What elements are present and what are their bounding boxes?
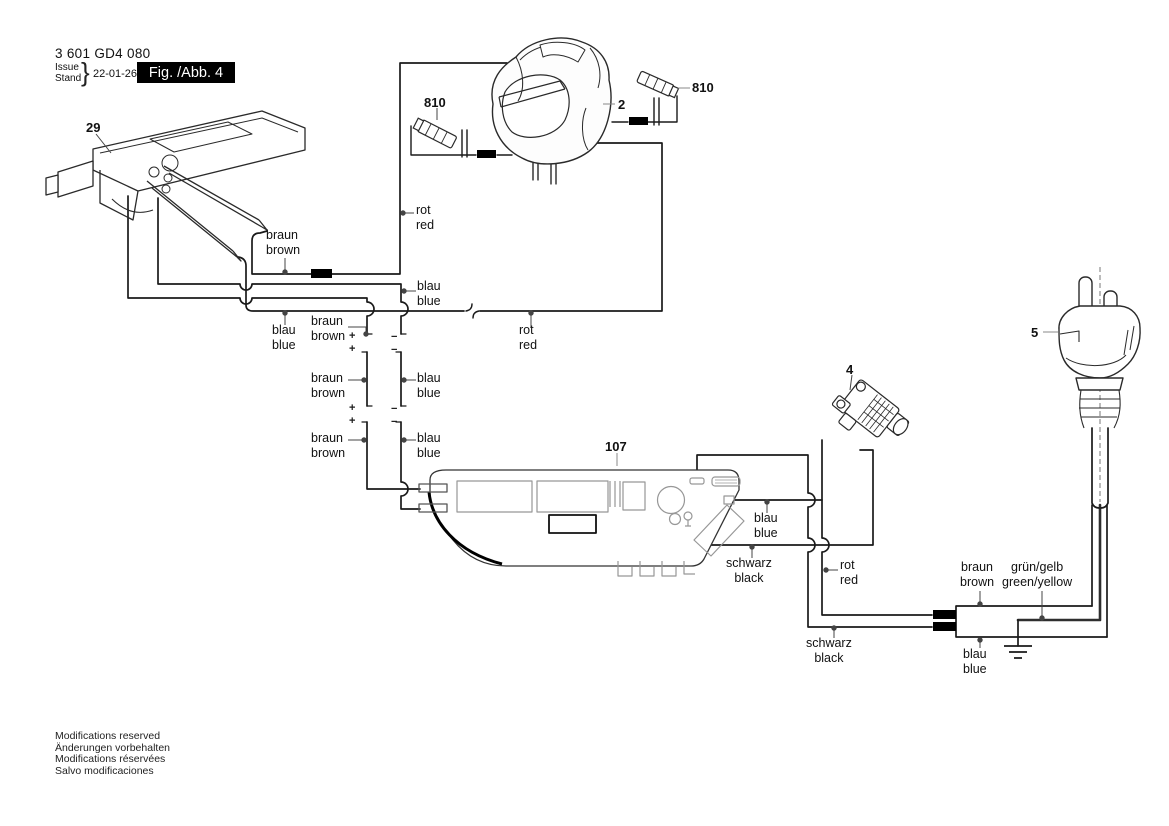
part-label-2: 2 <box>618 97 625 112</box>
polarity-mark: + <box>349 415 355 427</box>
wire-label-blau: blau blue <box>417 431 441 461</box>
wire-label-blau: blau blue <box>963 647 987 677</box>
wiring-diagram-page: 3 601 GD4 080 Issue Stand } 22-01-26 Fig… <box>0 0 1169 826</box>
wire-label-braun: braun brown <box>960 560 994 590</box>
polarity-mark: + <box>349 343 355 355</box>
wire-label-gr-n-gelb: grün/gelb green/yellow <box>1002 560 1072 590</box>
ground-symbol-icon <box>1004 646 1032 658</box>
issue-stand-label: Issue Stand <box>55 62 81 84</box>
modifications-notice: Modifications reservedÄnderungen vorbeha… <box>55 731 170 777</box>
part-label-4: 4 <box>846 362 853 377</box>
cord-jacket <box>956 606 1107 637</box>
wire-rot-conn4-crimp <box>822 440 932 615</box>
part-label-5: 5 <box>1031 325 1038 340</box>
wire-label-rot: rot red <box>840 558 858 588</box>
wire-label-braun: braun brown <box>266 228 300 258</box>
wire-label-blau: blau blue <box>272 323 296 353</box>
polarity-mark: + <box>349 402 355 414</box>
wire-label-blau: blau blue <box>417 279 441 309</box>
wire-label-schwarz: schwarz black <box>726 556 772 586</box>
control-board-107-drawing <box>419 470 744 576</box>
wire-label-blau: blau blue <box>754 511 778 541</box>
part-number: 3 601 GD4 080 <box>55 46 150 61</box>
part-label-810: 810 <box>692 80 714 95</box>
wire-label-braun: braun brown <box>311 314 345 344</box>
wire-label-schwarz: schwarz black <box>806 636 852 666</box>
terminal-810-right-drawing <box>637 71 679 99</box>
figure-label-badge: Fig. /Abb. 4 <box>137 62 235 83</box>
polarity-mark: − <box>391 403 397 415</box>
wire-label-rot: rot red <box>519 323 537 353</box>
wire-label-braun: braun brown <box>311 431 345 461</box>
terminal-810-left-drawing <box>413 117 457 148</box>
polarity-mark: − <box>391 344 397 356</box>
wire-label-blau: blau blue <box>417 371 441 401</box>
connector-4-drawing <box>826 375 914 458</box>
polarity-mark: − <box>391 331 397 343</box>
polarity-mark: − <box>391 416 397 428</box>
wire-label-braun: braun brown <box>311 371 345 401</box>
issue-date: 22-01-26 <box>93 68 137 80</box>
field-coil-2-drawing <box>492 38 611 164</box>
wire-braun-to-board <box>367 422 420 489</box>
part-label-810: 810 <box>424 95 446 110</box>
part-label-29: 29 <box>86 120 100 135</box>
part-label-107: 107 <box>605 439 627 454</box>
brace-glyph: } <box>81 57 90 88</box>
polarity-mark: + <box>349 330 355 342</box>
power-plug-5-drawing <box>1059 267 1140 502</box>
wiring-diagram-canvas <box>0 0 1169 826</box>
wire-rot-long <box>480 143 662 311</box>
wire-label-rot: rot red <box>416 203 434 233</box>
